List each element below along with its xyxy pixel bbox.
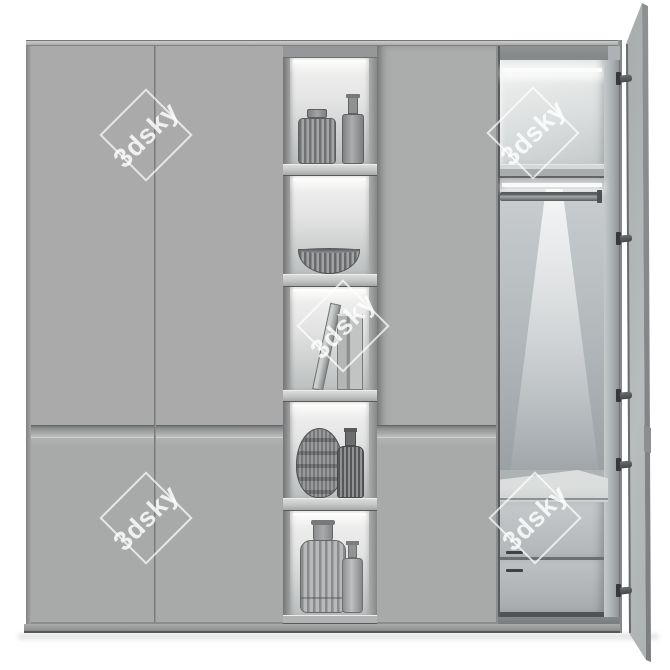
drawer-handle xyxy=(506,569,523,572)
door-handle-groove xyxy=(377,425,496,438)
shelf-column xyxy=(283,46,377,624)
bowl-rim xyxy=(298,248,360,253)
striped-round-vase xyxy=(296,428,343,498)
led-strip xyxy=(502,68,602,72)
bottle-neck xyxy=(313,523,333,541)
led-strip xyxy=(293,289,366,292)
floor-shadow xyxy=(18,634,658,642)
led-strip xyxy=(502,183,602,187)
hinge xyxy=(616,456,632,473)
jar-lid xyxy=(307,109,327,118)
ribbed-bottle xyxy=(337,446,364,498)
column-left-pillar xyxy=(283,46,290,624)
shelf-bottom-board xyxy=(283,615,377,624)
niche-3 xyxy=(290,287,369,390)
bottle xyxy=(342,114,364,164)
niche-4 xyxy=(290,402,369,498)
column-right-pillar xyxy=(369,46,377,624)
hanging-rod xyxy=(500,192,602,201)
open-hinged-door xyxy=(618,0,670,670)
shelf-board xyxy=(283,164,377,176)
column-top-band xyxy=(283,46,377,58)
rod-bracket xyxy=(597,190,602,203)
countertop-edge xyxy=(500,498,608,500)
led-strip xyxy=(293,178,366,181)
niche-5 xyxy=(290,511,369,615)
bottle-band xyxy=(301,597,345,599)
niche-1 xyxy=(290,58,369,164)
interior-shelf xyxy=(500,164,604,178)
small-bottle xyxy=(342,558,363,613)
door-handle-groove xyxy=(31,425,283,438)
hinge xyxy=(616,230,632,247)
hinge xyxy=(616,582,632,599)
top-shelf-compartment xyxy=(500,60,604,164)
shelf-board xyxy=(283,274,377,287)
interior-back-wall xyxy=(500,189,604,470)
standing-books xyxy=(337,314,363,390)
bottle-lip xyxy=(311,520,335,525)
interior-plinth xyxy=(498,617,620,624)
led-strip xyxy=(293,513,366,516)
interior-ceiling xyxy=(500,46,608,60)
shelf-board xyxy=(283,390,377,402)
hinge xyxy=(616,70,632,87)
door-seam xyxy=(154,46,156,624)
door-lower-panel xyxy=(377,438,496,622)
shelf-board xyxy=(283,498,377,511)
led-strip xyxy=(293,404,366,407)
large-ribbed-bottle xyxy=(300,540,346,613)
door-lower-panel xyxy=(31,438,283,622)
led-strip xyxy=(293,60,366,63)
niche-2 xyxy=(290,176,369,274)
light-glow xyxy=(500,189,604,470)
bottle-neck xyxy=(345,431,356,446)
bottle-neck xyxy=(348,97,358,114)
door-panels-left xyxy=(31,46,283,624)
bottle-lip xyxy=(346,541,359,545)
sliding-door-panel xyxy=(377,46,498,624)
bottle-lip xyxy=(346,94,360,98)
drawer-handle xyxy=(506,551,523,554)
base-plinth xyxy=(24,624,620,633)
hinge xyxy=(616,387,632,404)
bottle-neck xyxy=(348,544,357,558)
ribbed-jar xyxy=(298,118,336,164)
render-canvas: 3dsky 3dsky 3dsky 3dsky 3dsky xyxy=(0,0,670,670)
bottle-lip xyxy=(344,428,357,432)
open-interior-section xyxy=(498,46,620,624)
